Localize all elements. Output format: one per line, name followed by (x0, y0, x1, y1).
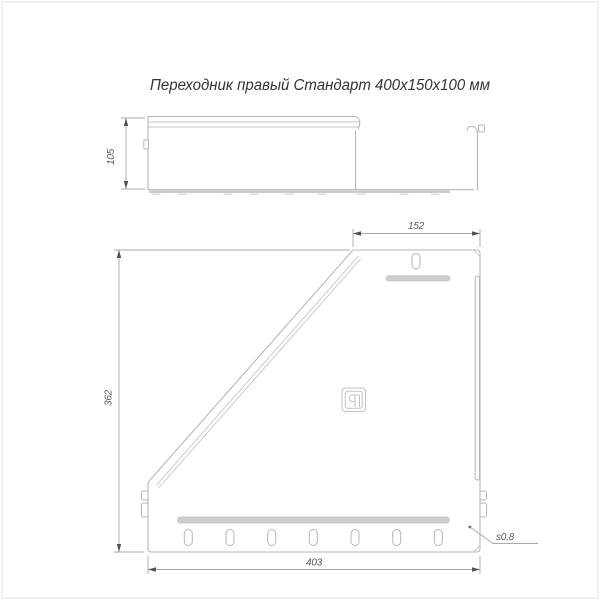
dim-label-left-height: 362 (104, 389, 115, 406)
main-view: 152 362 403 (104, 221, 539, 574)
technical-drawing: Переходник правый Стандарт 400х150х100 м… (0, 0, 600, 600)
dim-profile-height: 105 (106, 118, 145, 189)
connector-tabs-left (142, 491, 149, 517)
bottom-slots (184, 530, 442, 546)
lock-tab-left (144, 140, 149, 149)
thickness-callout: s0,8 (469, 526, 538, 544)
top-bead (386, 276, 450, 281)
slot (434, 530, 442, 546)
lock-tab-right (479, 125, 485, 132)
dim-bottom-width: 403 (148, 556, 480, 574)
plate-outline (148, 250, 480, 552)
bottom-bead (178, 517, 450, 523)
slot (309, 530, 317, 546)
top-slot (412, 254, 420, 270)
slot (268, 530, 276, 546)
top-view: 105 (106, 117, 485, 195)
dim-label-profile-height: 105 (106, 148, 117, 165)
brand-logo-icon (342, 388, 366, 412)
profile-outline (144, 117, 485, 195)
drawing-title: Переходник правый Стандарт 400х150х100 м… (150, 77, 490, 94)
dim-label-bottom-width: 403 (306, 558, 323, 569)
connector-tabs-right (480, 491, 487, 517)
bend-line-outer (157, 257, 359, 486)
bend-line-inner (159, 259, 361, 488)
drawing-page: Переходник правый Стандарт 400х150х100 м… (0, 0, 600, 600)
slot (184, 530, 192, 546)
dim-label-thickness: s0,8 (496, 532, 515, 543)
slot (226, 530, 234, 546)
slot (393, 530, 401, 546)
dim-label-top-width: 152 (408, 221, 425, 232)
slot (351, 530, 359, 546)
dim-top-width: 152 (353, 221, 480, 247)
right-edge-bead (475, 276, 479, 480)
